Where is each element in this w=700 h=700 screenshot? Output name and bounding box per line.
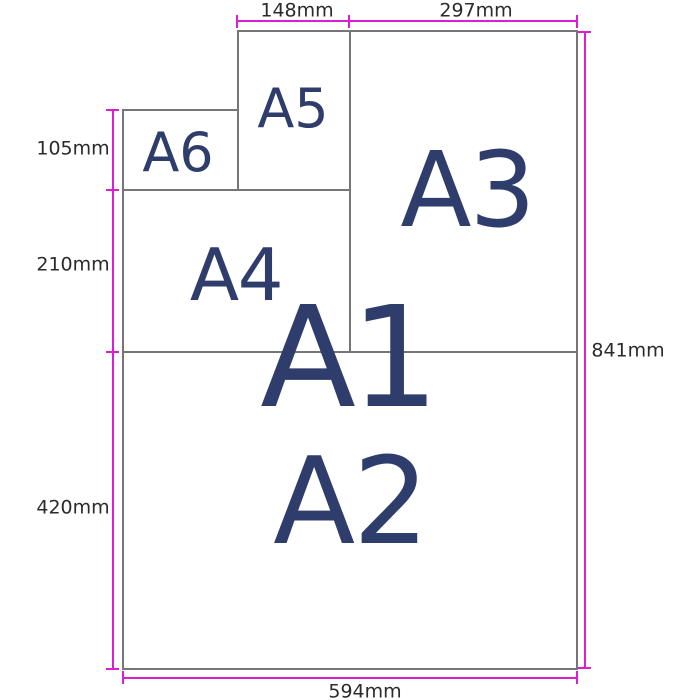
border-divider-a6-a5: [237, 30, 239, 191]
dim-tick-left-middle: [106, 351, 119, 353]
dim-tick-left-bottom: [106, 668, 119, 670]
label-a6: A6: [142, 126, 213, 180]
dim-tick-bottom-right: [576, 671, 578, 684]
measurement-a3-width: 297mm: [439, 2, 512, 21]
border-top-a5-a3: [237, 30, 578, 32]
dim-tick-right-top: [578, 31, 591, 33]
label-a4: A4: [190, 239, 282, 311]
dim-tick-bottom-left: [122, 671, 124, 684]
border-top-a6: [122, 109, 239, 111]
dim-tick-top-middle: [348, 15, 350, 28]
measurement-a1-width: 594mm: [328, 683, 401, 700]
dim-tick-top-right: [576, 15, 578, 28]
border-bottom-a2: [122, 668, 578, 670]
label-a3: A3: [400, 138, 533, 242]
label-a1: A1: [260, 289, 434, 429]
dim-tick-right-bottom: [578, 667, 591, 669]
border-right: [576, 30, 578, 670]
measurement-a4-height: 210mm: [36, 256, 109, 275]
measurement-a5-width: 148mm: [260, 2, 333, 21]
measurement-a1-height: 841mm: [591, 342, 664, 361]
dim-line-right: [584, 31, 586, 669]
paper-size-diagram: A1 A2 A3 A4 A5 A6 148mm 297mm 105mm 210m…: [0, 0, 700, 700]
dim-tick-top-left: [236, 15, 238, 28]
dim-line-left: [112, 109, 114, 670]
label-a5: A5: [257, 82, 328, 136]
dim-tick-left-a6-top: [106, 109, 119, 111]
measurement-a2-height: 420mm: [36, 499, 109, 518]
measurement-a6-height: 105mm: [36, 140, 109, 159]
dim-tick-left-a6-bottom: [106, 189, 119, 191]
dim-line-bottom: [122, 677, 578, 679]
border-left: [122, 109, 124, 670]
label-a2: A2: [273, 443, 427, 563]
